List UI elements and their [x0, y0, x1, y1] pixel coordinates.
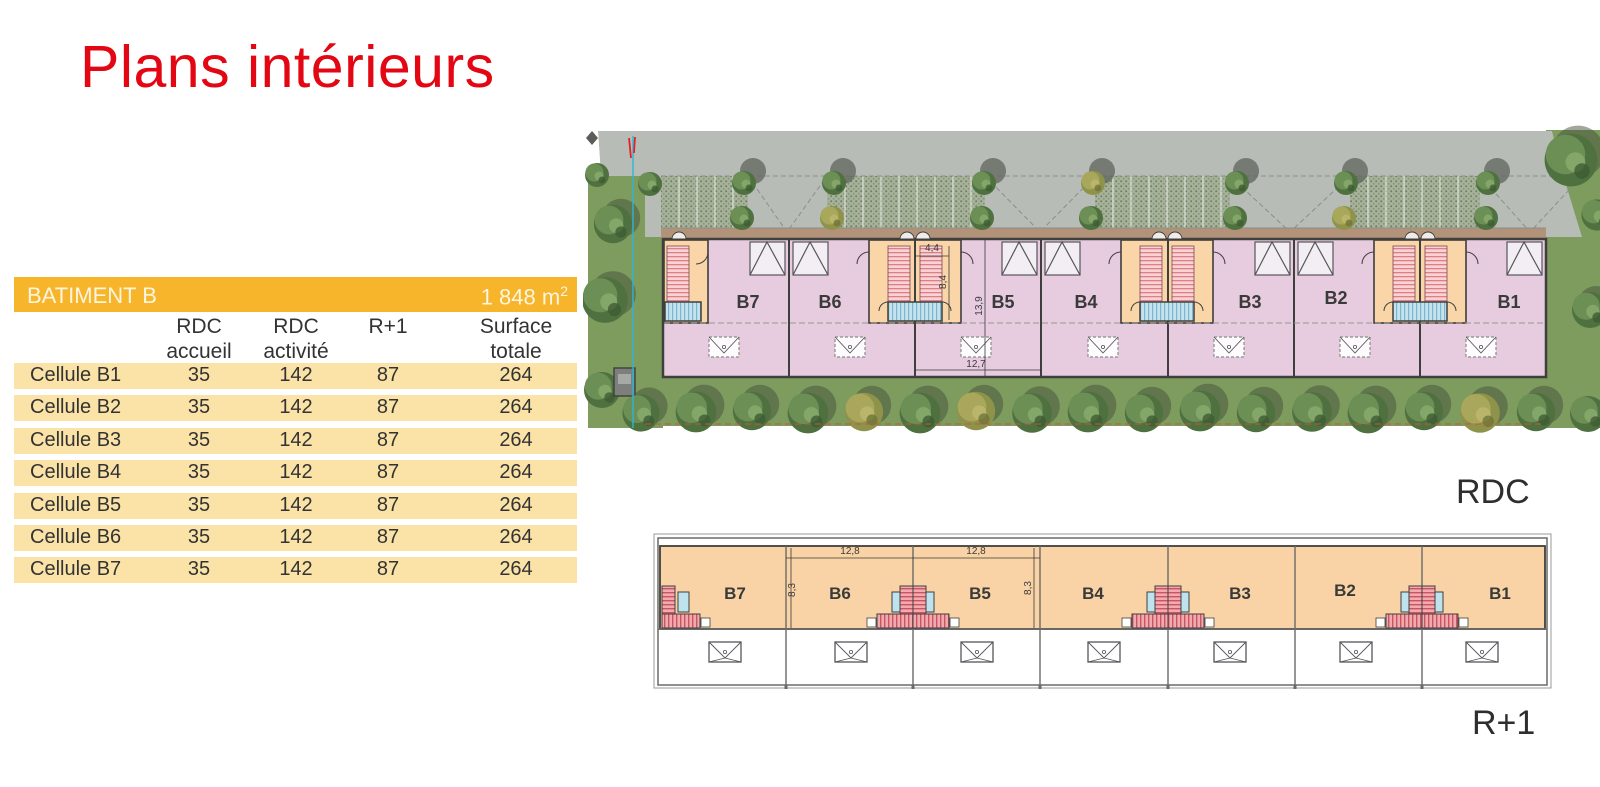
svg-text:B5: B5: [991, 292, 1014, 312]
svg-text:12,7: 12,7: [966, 359, 986, 370]
svg-text:B1: B1: [1489, 584, 1511, 603]
svg-text:B1: B1: [1497, 292, 1520, 312]
svg-text:12,8: 12,8: [966, 546, 986, 557]
svg-text:B2: B2: [1324, 288, 1347, 308]
svg-text:B6: B6: [818, 292, 841, 312]
svg-text:12,8: 12,8: [840, 546, 860, 557]
svg-text:B2: B2: [1334, 581, 1356, 600]
svg-text:B7: B7: [724, 584, 746, 603]
svg-text:B4: B4: [1082, 584, 1104, 603]
svg-text:B4: B4: [1074, 292, 1097, 312]
svg-text:B5: B5: [969, 584, 991, 603]
svg-text:B6: B6: [829, 584, 851, 603]
svg-text:8,3: 8,3: [787, 583, 798, 597]
svg-text:B3: B3: [1229, 584, 1251, 603]
svg-text:4,4: 4,4: [925, 243, 939, 254]
svg-text:B7: B7: [736, 292, 759, 312]
svg-text:B3: B3: [1238, 292, 1261, 312]
svg-text:8,3: 8,3: [1023, 581, 1034, 595]
svg-text:13,9: 13,9: [974, 296, 985, 316]
svg-text:8,4: 8,4: [938, 275, 949, 289]
